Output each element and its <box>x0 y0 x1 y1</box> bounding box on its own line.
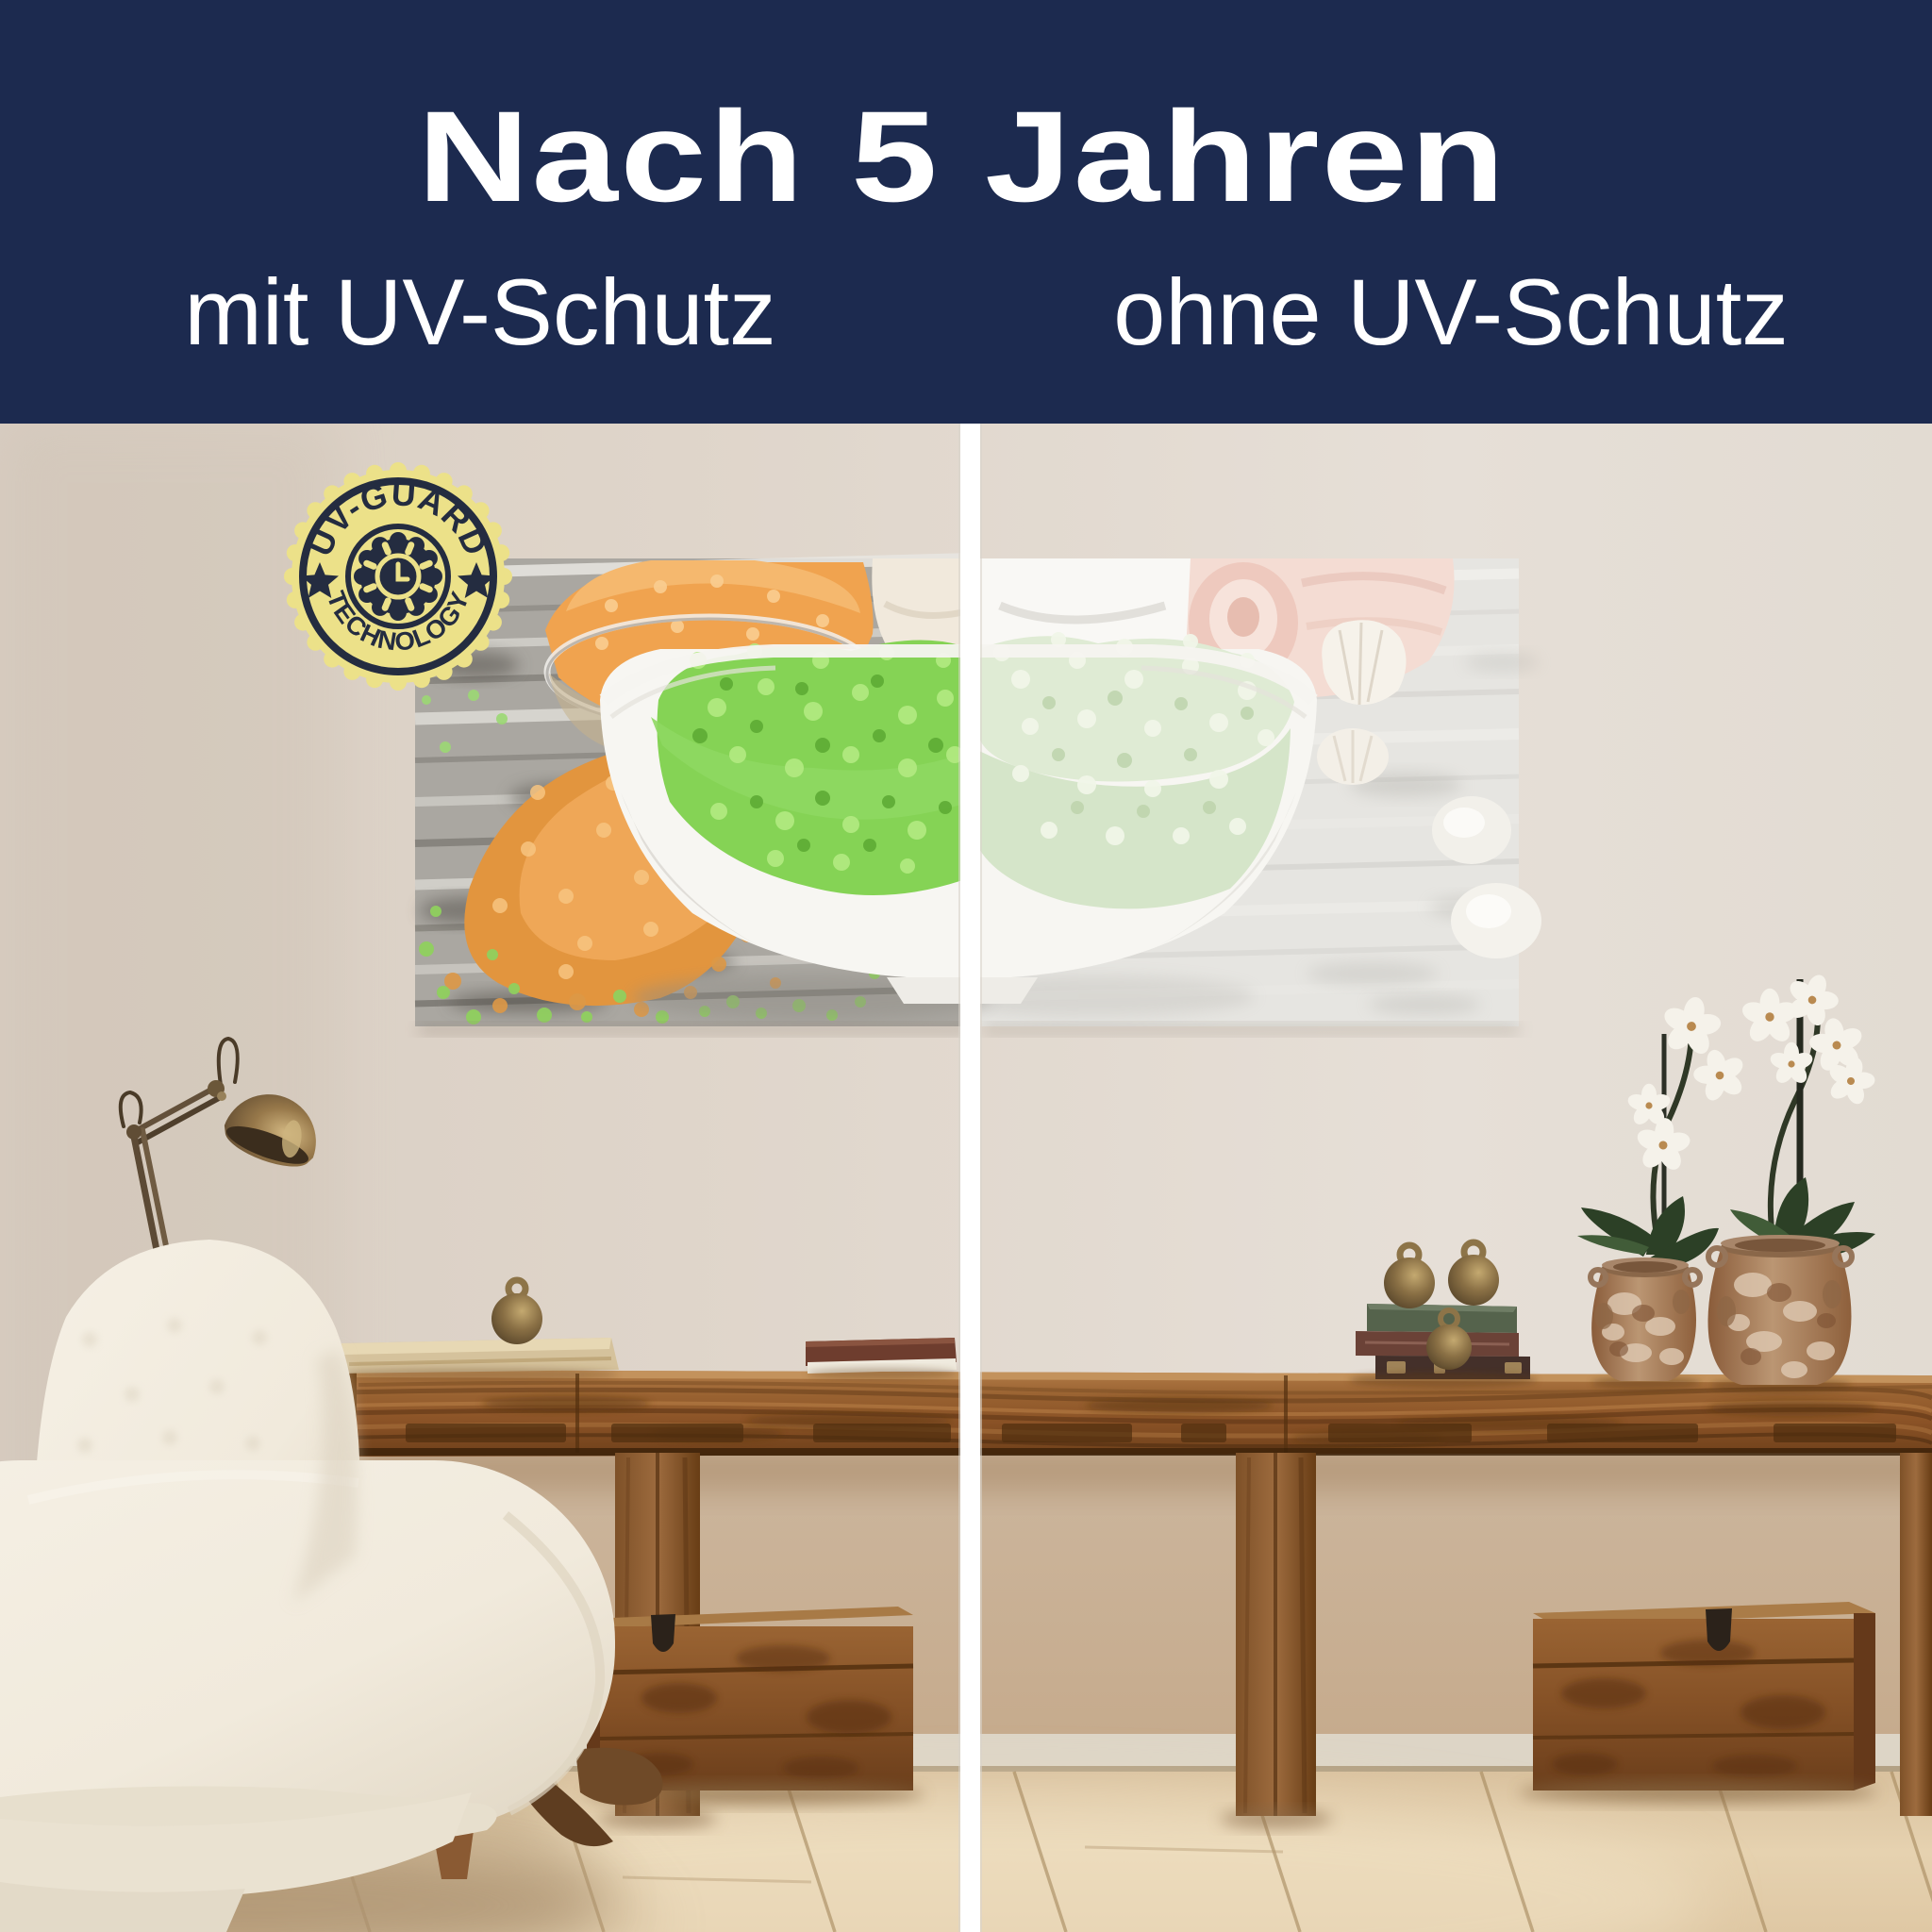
svg-text:ohne UV-Schutz: ohne UV-Schutz <box>1113 259 1788 364</box>
svg-text:mit UV-Schutz: mit UV-Schutz <box>184 259 775 364</box>
svg-text:Nach 5 Jahren: Nach 5 Jahren <box>417 85 1507 229</box>
